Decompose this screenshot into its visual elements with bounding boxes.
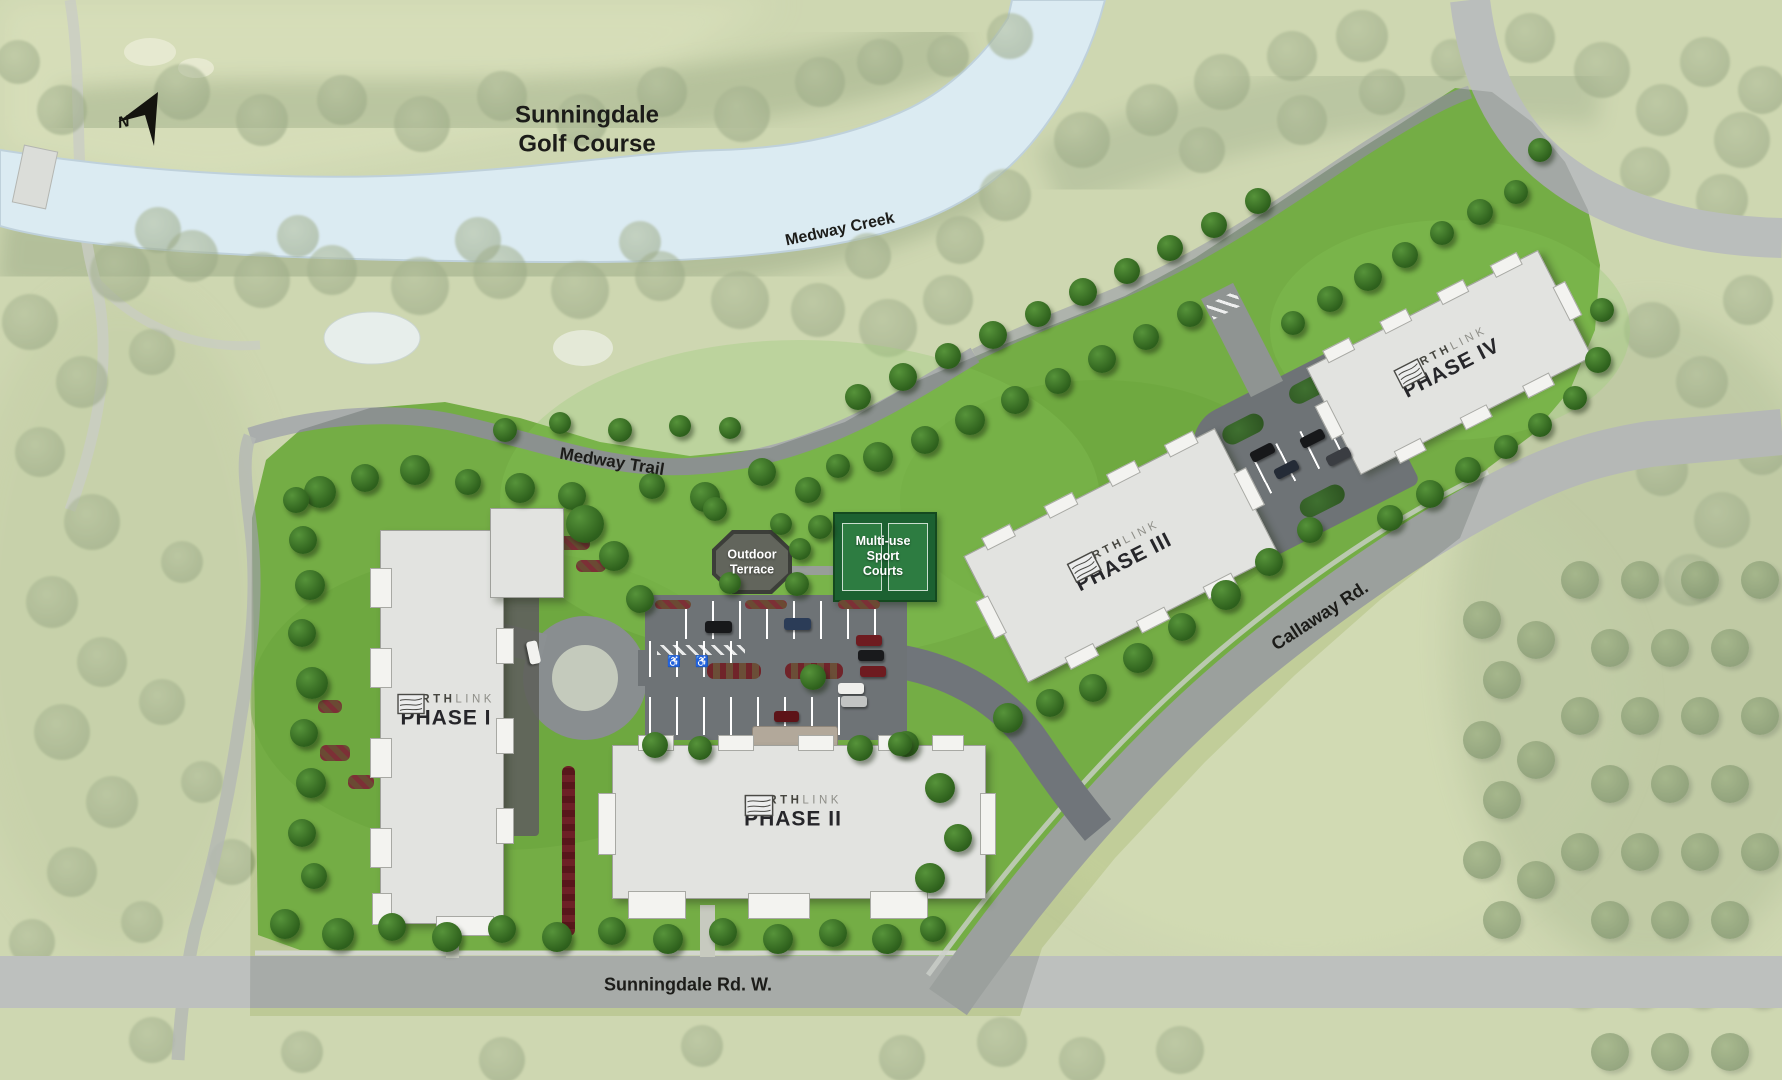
courts-label-line2: Sport — [856, 549, 911, 564]
golf-course-label: Sunningdale Golf Course — [515, 101, 659, 160]
sunningdale-road-label: Sunningdale Rd. W. — [604, 975, 772, 996]
terrace-label-line1: Outdoor — [727, 547, 776, 562]
callaway-road-label: Callaway Rd. — [1268, 577, 1373, 655]
golf-course-label-line2: Golf Course — [515, 130, 659, 159]
north-arrow: N — [100, 78, 170, 158]
courts-label-line1: Multi-use — [856, 534, 911, 549]
trail-label: Medway Trail — [558, 444, 666, 480]
golf-course-label-line1: Sunningdale — [515, 101, 659, 130]
creek-label: Medway Creek — [784, 210, 896, 251]
site-plan-map: ♿ ♿ — [0, 0, 1782, 1080]
outdoor-terrace-label: Outdoor Terrace — [727, 547, 776, 577]
labels-layer: Sunningdale Golf Course Medway Creek Med… — [0, 0, 1782, 1080]
courts-label-line3: Courts — [856, 563, 911, 578]
terrace-label-line2: Terrace — [727, 562, 776, 577]
sport-courts-label: Multi-use Sport Courts — [856, 534, 911, 578]
